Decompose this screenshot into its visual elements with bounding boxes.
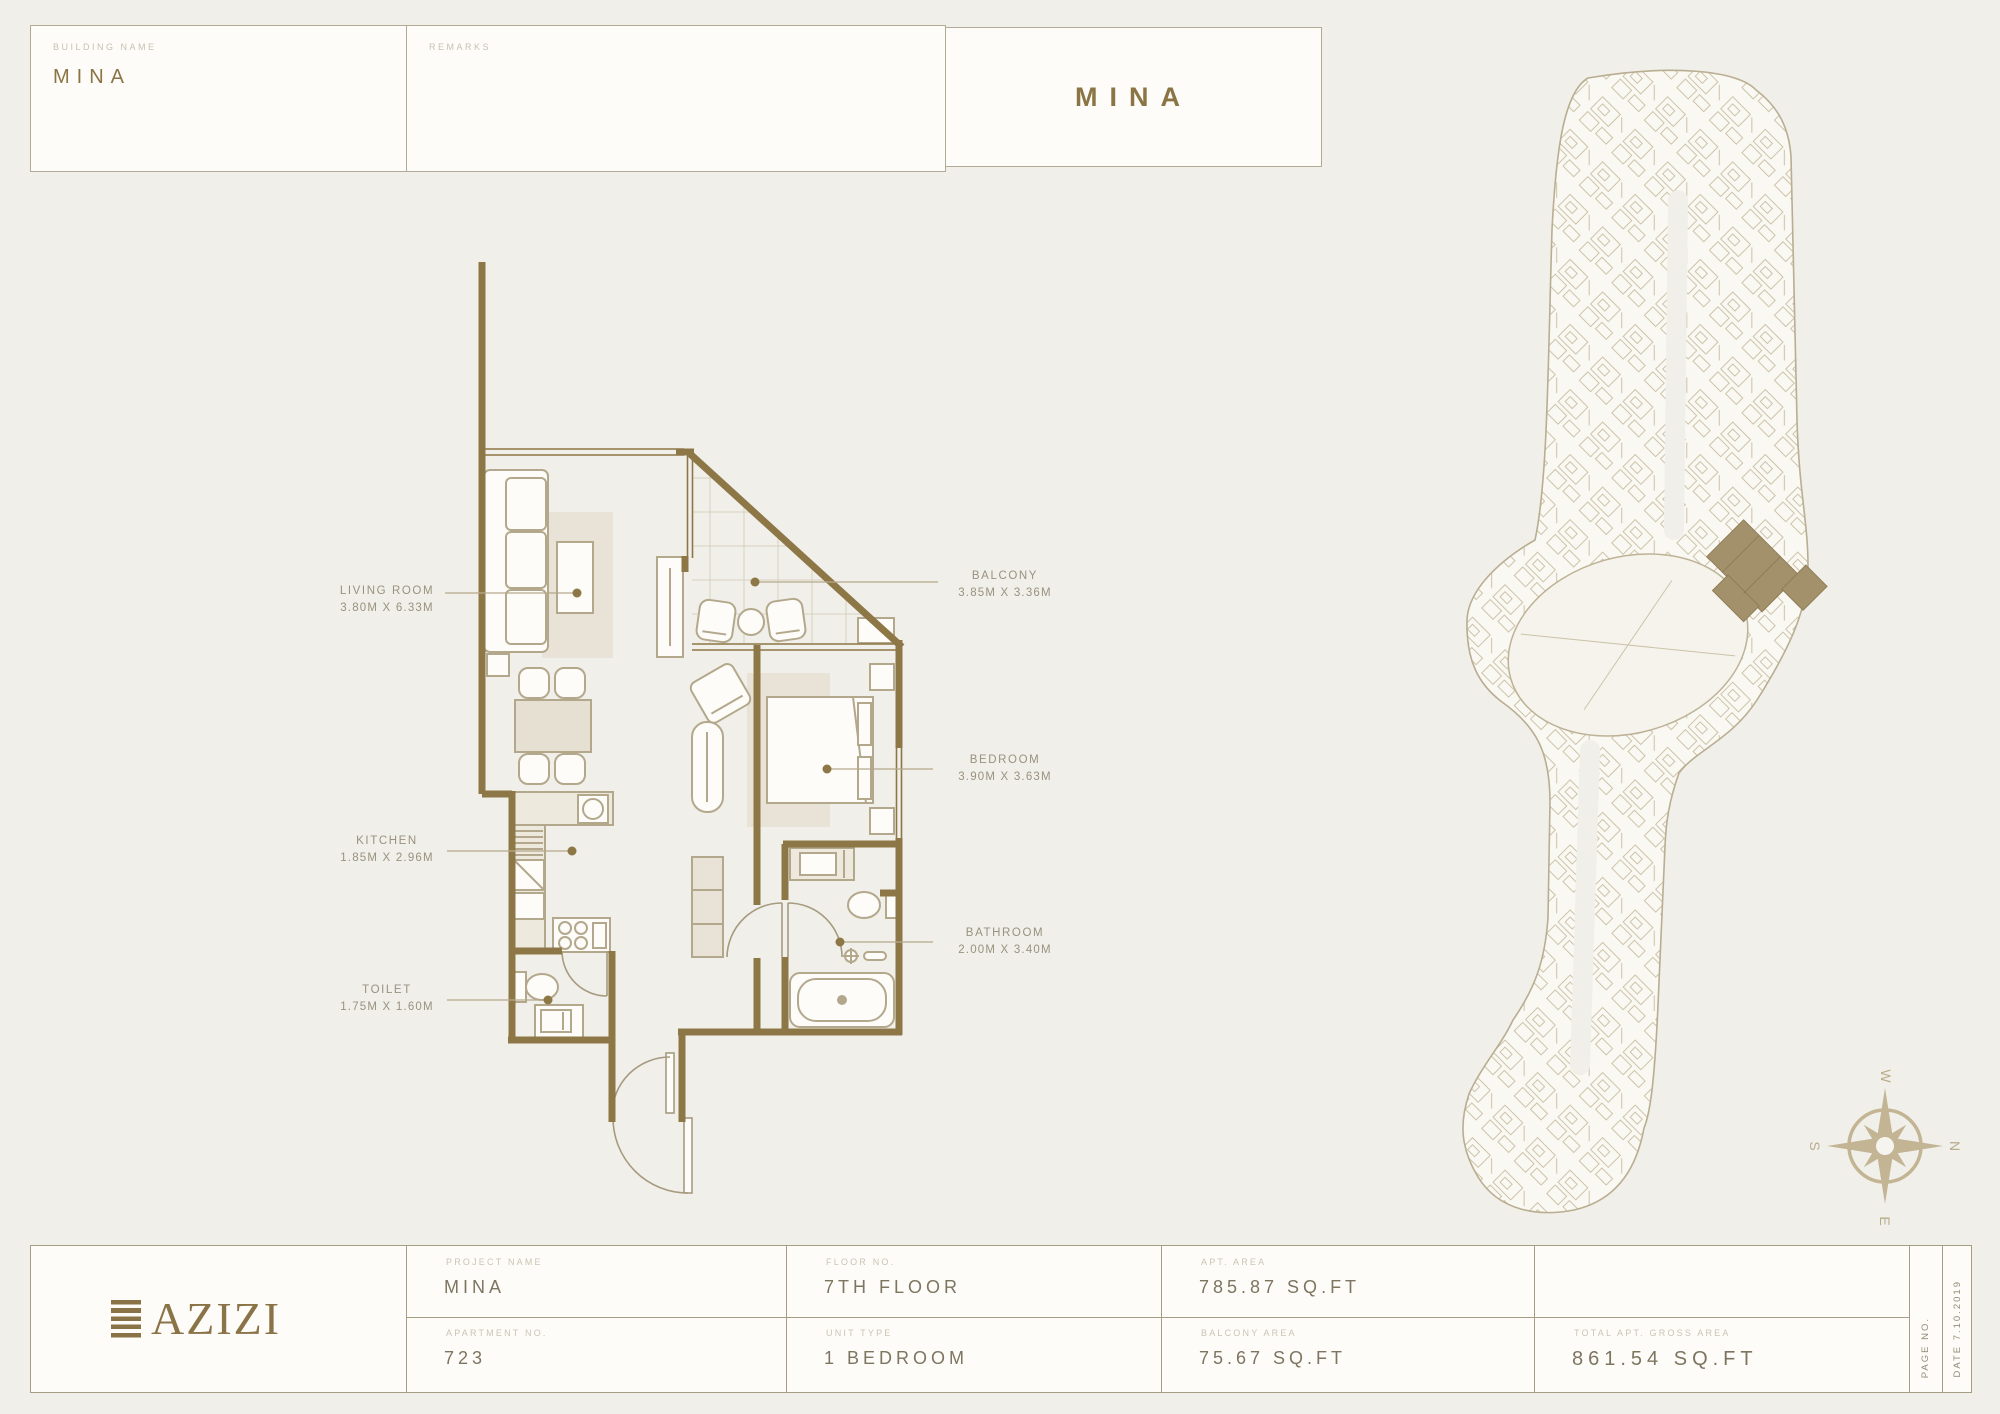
toilet-wc — [514, 972, 526, 1002]
balcony-chair — [765, 598, 806, 643]
armchair — [688, 661, 753, 725]
dining-chair — [519, 668, 549, 698]
room-label-toilet: TOILET 1.75M X 1.60M — [328, 982, 446, 1016]
apartment-no-cell: APARTMENT NO. 723 — [406, 1317, 786, 1392]
dining-chair — [519, 754, 549, 784]
dining-chair — [555, 754, 585, 784]
balcony-table — [738, 609, 764, 635]
room-label-kitchen: KITCHEN 1.85M X 2.96M — [328, 833, 446, 867]
balcony-area-cell: BALCONY AREA 75.67 SQ.FT — [1161, 1317, 1534, 1392]
dining-table — [515, 700, 591, 752]
project-name-cell: PROJECT NAME MINA — [406, 1246, 786, 1317]
dining-chair — [555, 668, 585, 698]
floor-plan-sheet: BUILDING NAME MINA REMARKS MINA — [0, 0, 2000, 1414]
azizi-logo: AZIZI — [111, 1292, 281, 1345]
side-table — [487, 654, 509, 676]
unit-type-cell: UNIT TYPE 1 BEDROOM — [786, 1317, 1161, 1392]
compass-north-label: N — [1947, 1141, 1963, 1151]
azizi-logo-text: AZIZI — [151, 1292, 281, 1345]
compass-south-label: S — [1807, 1141, 1823, 1150]
azizi-logo-bars-icon — [111, 1300, 141, 1338]
site-plan: W N E S — [1440, 60, 1980, 1240]
balcony-chair — [695, 599, 736, 644]
floor-no-cell: FLOOR NO. 7TH FLOOR — [786, 1246, 1161, 1317]
compass-east-label: E — [1877, 1216, 1893, 1225]
room-label-bathroom: BATHROOM 2.00M X 3.40M — [935, 925, 1075, 959]
page-no-cell: PAGE NO. — [1909, 1246, 1942, 1392]
title-block-table: AZIZI PROJECT NAME MINA APARTMENT NO. 72… — [30, 1245, 1972, 1393]
total-gross-area-cell: TOTAL APT. GROSS AREA 861.54 SQ.FT — [1534, 1317, 1909, 1392]
bedside-table — [870, 808, 894, 834]
apt-area-cell: APT. AREA 785.87 SQ.FT — [1161, 1246, 1534, 1317]
date-cell: DATE 7.10.2019 — [1942, 1246, 1973, 1392]
coffee-table — [557, 542, 593, 613]
compass-west-label: W — [1878, 1069, 1894, 1083]
room-label-bedroom: BEDROOM 3.90M X 3.63M — [935, 752, 1075, 786]
entry-door-leaf — [666, 1053, 674, 1113]
bedside-table — [870, 664, 894, 690]
logo-cell: AZIZI — [31, 1246, 406, 1392]
room-label-balcony: BALCONY 3.85M X 3.36M — [935, 568, 1075, 602]
closet — [692, 857, 723, 957]
compass-icon: W N E S — [1807, 1069, 1963, 1225]
room-label-living-room: LIVING ROOM 3.80M X 6.33M — [328, 583, 446, 617]
